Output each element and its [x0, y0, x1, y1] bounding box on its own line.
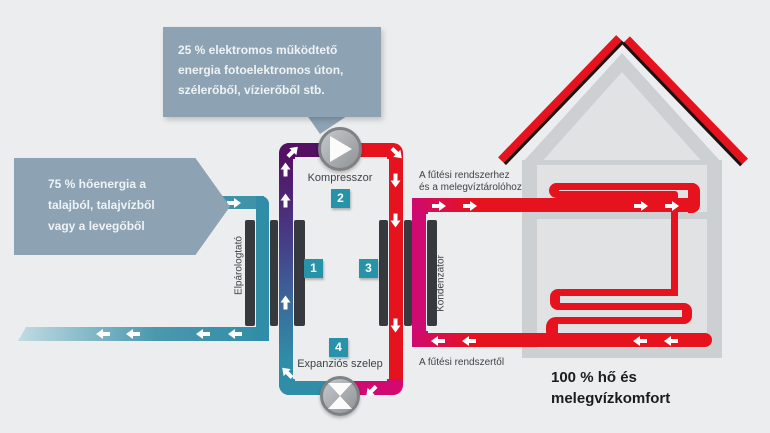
valve-triangle-bottom-icon [328, 396, 352, 409]
to-heating-label: A fűtési rendszerhez és a melegvíztároló… [419, 170, 522, 194]
flow-arrow-up-icon [281, 296, 291, 311]
flow-arrow-up-icon [281, 194, 291, 209]
evaporator-bar [270, 220, 278, 326]
house-room-lower [537, 219, 707, 348]
floor-coil-pass [558, 289, 678, 296]
flow-arrow-left-icon [196, 329, 211, 339]
callout-line: vagy a levegőből [48, 216, 230, 237]
flow-arrow-right-icon [633, 201, 648, 211]
radiator-coil-uturn-left [549, 183, 559, 198]
heat-source-callout: 75 % hőenergia a talajból, talajvízből v… [14, 158, 230, 255]
result-line2: melegvízkomfort [551, 388, 670, 409]
refrigerant-riser-pipe [279, 155, 293, 387]
flow-arrow-left-icon [664, 336, 679, 346]
condenser-water-riser-pipe [412, 206, 426, 340]
radiator-coil-uturn-right [688, 183, 700, 213]
callout-line: energia fotoelektromos úton, [178, 60, 381, 80]
station-badge-1: 1 [304, 259, 323, 278]
flow-arrow-right-icon [462, 201, 477, 211]
electric-energy-callout: 25 % elektromos működtető energia fotoel… [163, 27, 381, 117]
expansion-valve-label: Expanziós szelep [284, 358, 396, 370]
flow-arrow-left-icon [633, 336, 648, 346]
heating-supply-pipe [412, 198, 698, 212]
compressor-triangle-icon [330, 136, 352, 162]
flow-arrow-left-icon [431, 336, 446, 346]
flow-arrow-down-icon [391, 318, 401, 333]
station-badge-4: 4 [329, 338, 348, 357]
radiator-coil-pass [556, 183, 696, 190]
result-line1: 100 % hő és [551, 367, 670, 388]
heat-pump-diagram: 25 % elektromos működtető energia fotoel… [0, 0, 770, 433]
condenser-label: Kondenzátor [436, 239, 447, 329]
to-heating-line1: A fűtési rendszerhez [419, 170, 522, 182]
floor-coil-uturn-left [546, 317, 558, 341]
callout-line: 75 % hőenergia a [48, 174, 230, 195]
callout-line: szélerőből, vízierőből stb. [178, 80, 381, 100]
compressor-label: Kompresszor [295, 172, 385, 184]
flow-arrow-up-icon [281, 163, 291, 178]
station-badge-2: 2 [331, 189, 350, 208]
flow-arrow-down-icon [391, 173, 401, 188]
floor-coil-pass [556, 317, 686, 324]
flow-arrow-down-icon [391, 213, 401, 228]
radiator-coil-pass [556, 191, 678, 198]
flow-arrow-left-icon [228, 329, 243, 339]
station-badge-3: 3 [359, 259, 378, 278]
condenser-bar [379, 220, 388, 326]
flow-arrow-right-icon [431, 201, 446, 211]
flow-arrow-left-icon [126, 329, 141, 339]
to-heating-line2: és a melegvíztárolóhoz [419, 182, 522, 194]
from-heating-label: A fűtési rendszertől [419, 357, 504, 369]
expansion-valve-circle [320, 376, 360, 416]
compressor-circle [318, 127, 362, 171]
evaporator-label: Elpárologtató [234, 211, 245, 321]
house-gable-inner [538, 72, 706, 166]
ground-riser-pipe [256, 203, 269, 333]
callout-line: talajból, talajvízből [48, 195, 230, 216]
floor-coil-pass [556, 303, 686, 310]
flow-arrow-left-icon [462, 336, 477, 346]
result-label: 100 % hő és melegvízkomfort [551, 367, 670, 409]
refrigerant-downcomer-pipe [389, 155, 403, 385]
condenser-bar [404, 220, 412, 326]
evaporator-bar [245, 220, 255, 326]
flow-arrow-right-icon [664, 201, 679, 211]
callout-line: 25 % elektromos működtető [178, 40, 381, 60]
valve-triangle-top-icon [328, 383, 352, 396]
flow-arrow-left-icon [96, 329, 111, 339]
